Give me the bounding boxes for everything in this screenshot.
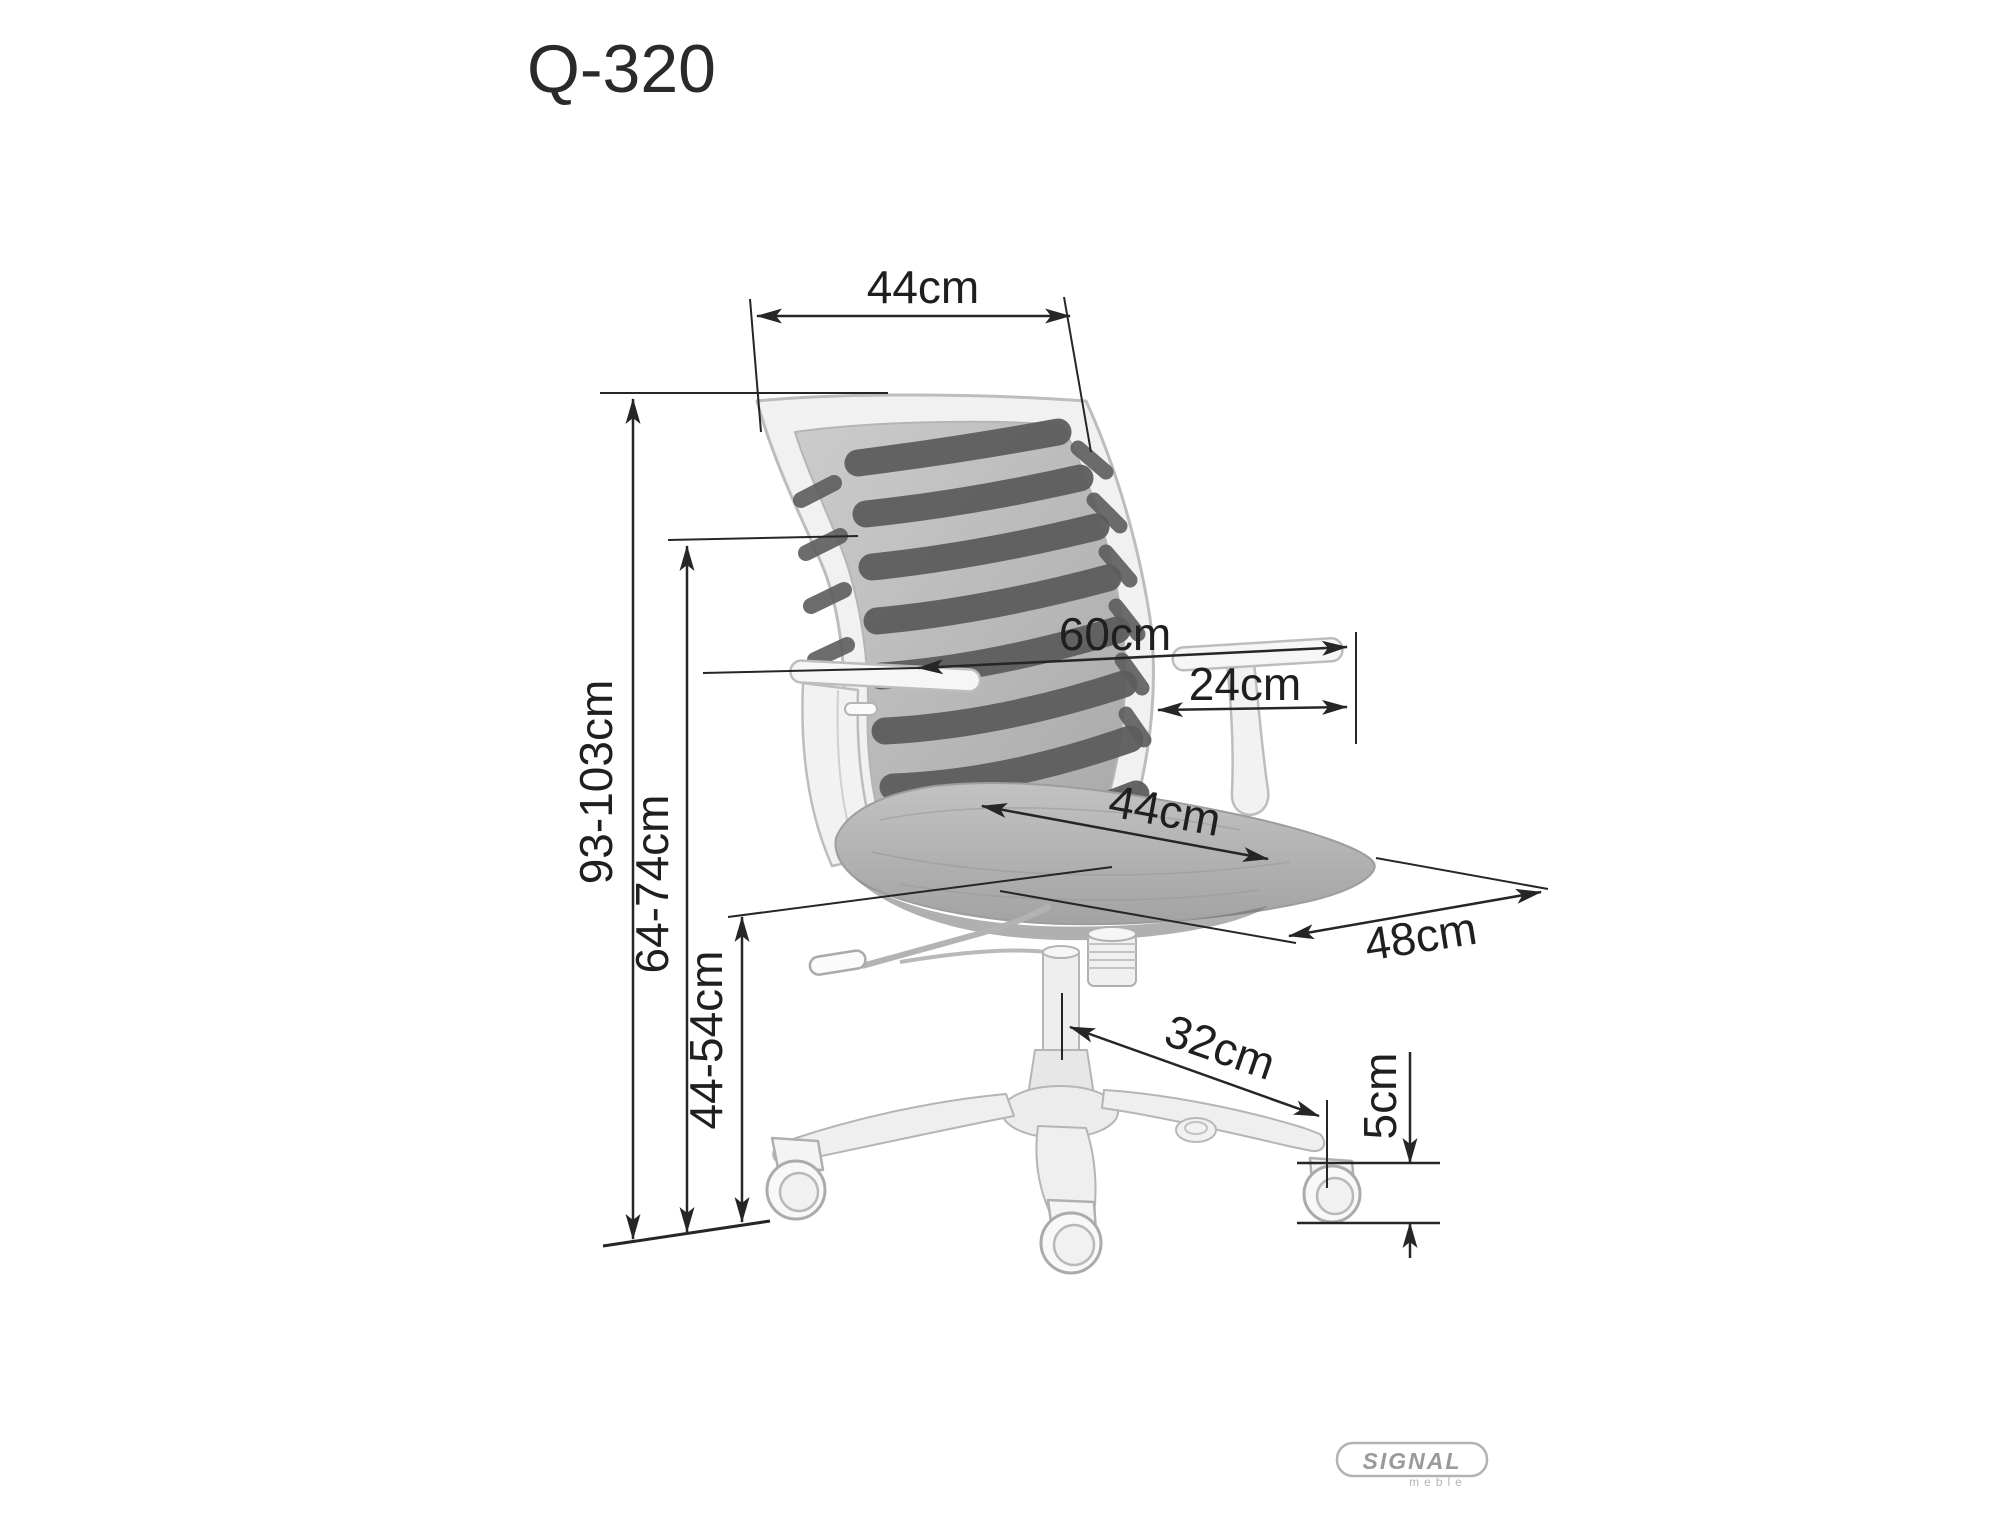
dim-label-backrest-width: 44cm (867, 261, 979, 313)
dim-label-overall-width: 60cm (1059, 608, 1171, 660)
seat-adjustment-knob (1088, 927, 1136, 986)
dimension-diagram-page: Q-320 44cm 93-103cm 64-74cm 44-54cm 60cm… (0, 0, 2000, 1530)
dim-label-base-span: 32cm (1159, 1004, 1282, 1090)
ext-line-backrest-left (750, 299, 761, 432)
dim-label-total-height: 93-103cm (570, 680, 622, 885)
dim-label-seat-depth: 48cm (1361, 902, 1480, 971)
back-caster-partial (1176, 1118, 1216, 1142)
brand-logo: SIGNAL meble (1337, 1443, 1487, 1489)
dim-label-seat-height: 44-54cm (680, 951, 732, 1130)
dim-label-caster: 5cm (1354, 1053, 1406, 1140)
brand-logo-subtitle: meble (1409, 1475, 1467, 1489)
left-armrest-slot (845, 703, 877, 715)
brand-logo-text: SIGNAL (1363, 1448, 1462, 1474)
caster-front (1041, 1200, 1101, 1273)
page-title: Q-320 (527, 31, 716, 107)
chair-illustration (757, 395, 1375, 1273)
base-leg-right (1102, 1090, 1324, 1151)
chair-dimension-drawing: Q-320 44cm 93-103cm 64-74cm 44-54cm 60cm… (0, 0, 2000, 1530)
tilt-lever-handle (809, 949, 867, 976)
caster-right (1304, 1158, 1360, 1222)
caster-left (767, 1138, 825, 1219)
seat-cushion (835, 783, 1374, 924)
dim-label-armrest-pad: 24cm (1189, 658, 1301, 710)
ext-line-seat-front (1376, 858, 1548, 889)
dim-label-armrest-height: 64-74cm (626, 795, 678, 974)
